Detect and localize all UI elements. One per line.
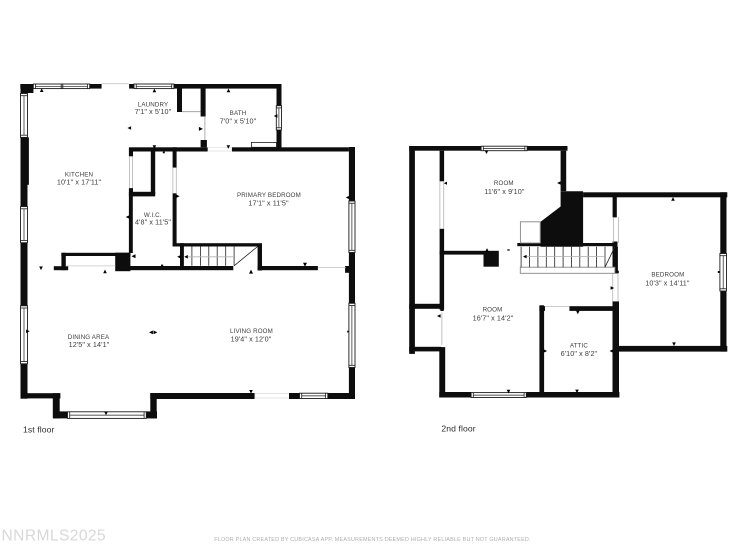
- svg-text:BEDROOM: BEDROOM: [651, 272, 684, 279]
- svg-text:FLOOR PLAN CREATED BY CUBICASA: FLOOR PLAN CREATED BY CUBICASA APP. MEAS…: [214, 537, 530, 543]
- svg-text:ROOM: ROOM: [494, 180, 514, 187]
- svg-text:12'5" x 14'1": 12'5" x 14'1": [69, 340, 110, 349]
- svg-text:10'1" x 17'11": 10'1" x 17'11": [57, 177, 102, 186]
- svg-text:7'0" x 5'10": 7'0" x 5'10": [220, 117, 257, 126]
- svg-text:11'6" x 9'10": 11'6" x 9'10": [484, 187, 525, 196]
- svg-text:16'7" x 14'2": 16'7" x 14'2": [473, 314, 514, 323]
- svg-text:19'4" x 12'0": 19'4" x 12'0": [231, 335, 272, 344]
- svg-text:6'10" x 8'2": 6'10" x 8'2": [561, 349, 598, 358]
- svg-text:10'3" x 14'11": 10'3" x 14'11": [645, 279, 690, 288]
- svg-text:NNRMLS2025: NNRMLS2025: [2, 527, 107, 544]
- svg-text:7'1" x 5'10": 7'1" x 5'10": [135, 107, 172, 116]
- svg-text:1st floor: 1st floor: [23, 425, 55, 435]
- svg-text:4'8" x 11'5": 4'8" x 11'5": [135, 217, 171, 226]
- svg-text:ROOM: ROOM: [483, 306, 503, 313]
- svg-text:2nd floor: 2nd floor: [441, 424, 475, 434]
- svg-text:17'1" x 11'5": 17'1" x 11'5": [248, 199, 289, 208]
